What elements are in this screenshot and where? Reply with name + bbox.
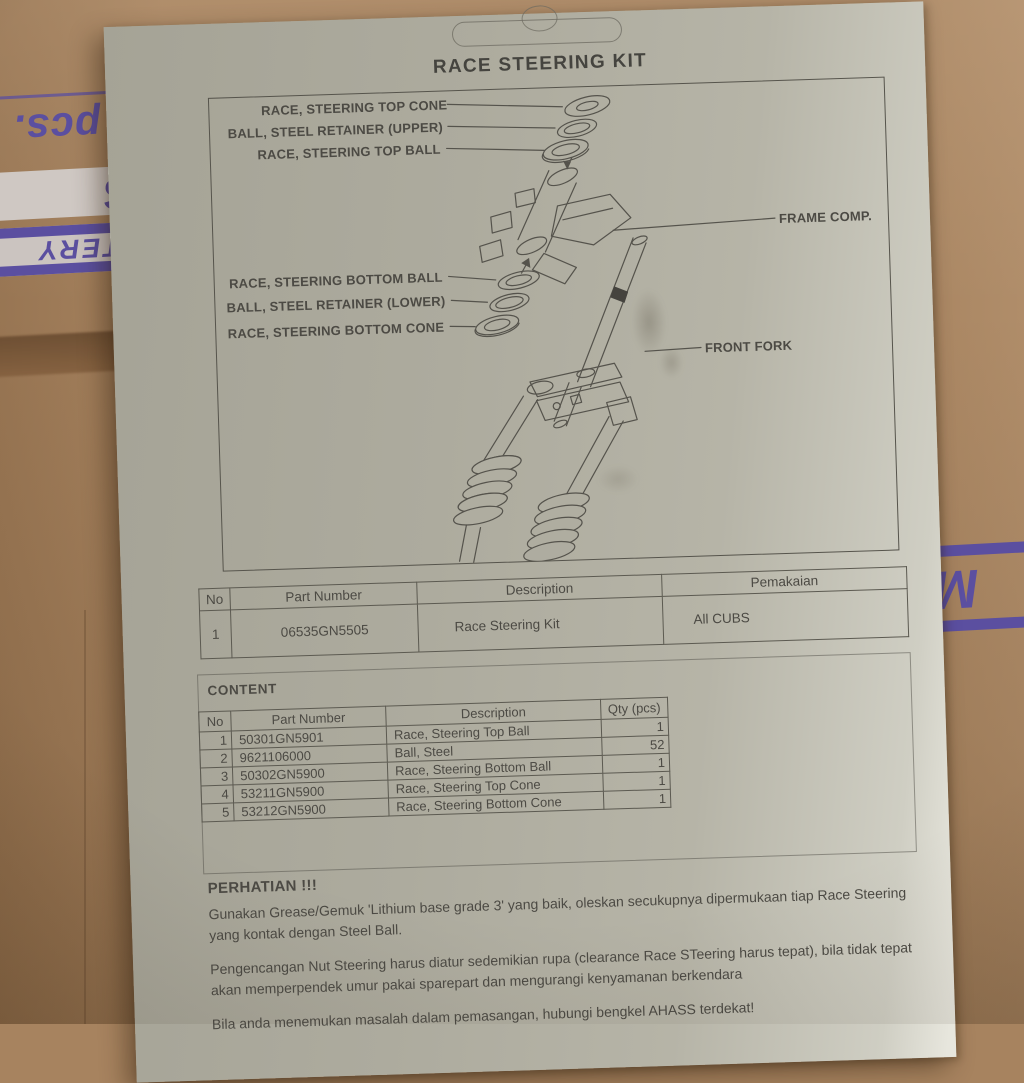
row-no: 1 [199, 731, 232, 750]
row-no: 2 [200, 749, 233, 768]
frame-comp-drawing [477, 163, 633, 287]
row-part-number: 53212GN5900 [234, 798, 389, 821]
content-col-no: No [199, 711, 232, 732]
leader-lines [443, 94, 779, 357]
pcs-print-fragment: pcs. [11, 101, 101, 154]
row-qty: 1 [603, 771, 671, 791]
row-qty: 1 [603, 789, 671, 809]
warning-paragraph: Pengencangan Nut Steering harus diatur s… [210, 936, 939, 1001]
row-no: 4 [201, 785, 234, 804]
row-no: 5 [202, 803, 235, 822]
parts-leaflet: RACE STEERING KIT [104, 1, 957, 1082]
content-section: CONTENT No Part Number Description Qty (… [197, 652, 917, 874]
row-no: 3 [200, 767, 233, 786]
kit-col-no: No [199, 588, 231, 611]
kit-no: 1 [200, 610, 232, 659]
cardboard-crease [84, 610, 86, 1024]
warning-paragraph: Bila anda menemukan masalah dalam pemasa… [212, 991, 940, 1035]
warning-section: PERHATIAN !!! Gunakan Grease/Gemuk 'Lith… [207, 857, 940, 1035]
label-frame-comp: FRAME COMP. [779, 208, 872, 226]
kit-description: Race Steering Kit [417, 596, 663, 652]
bottom-race-rings [472, 267, 543, 338]
label-front-fork: FRONT FORK [705, 338, 793, 356]
kit-pemakaian: All CUBS [662, 589, 908, 645]
kit-part-number: 06535GN5505 [230, 604, 418, 658]
content-table: No Part Number Description Qty (pcs) 1 5… [198, 697, 671, 823]
row-qty: 1 [602, 753, 670, 773]
row-qty: 1 [601, 717, 669, 737]
kit-table: No Part Number Description Pemakaian 1 0… [198, 566, 909, 659]
row-qty: 52 [602, 735, 670, 755]
content-heading: CONTENT [207, 681, 277, 698]
exploded-diagram-box: RACE, STEERING TOP CONE BALL, STEEL RETA… [208, 77, 900, 572]
content-col-qty: Qty (pcs) [600, 697, 668, 719]
front-fork-drawing [443, 234, 658, 567]
